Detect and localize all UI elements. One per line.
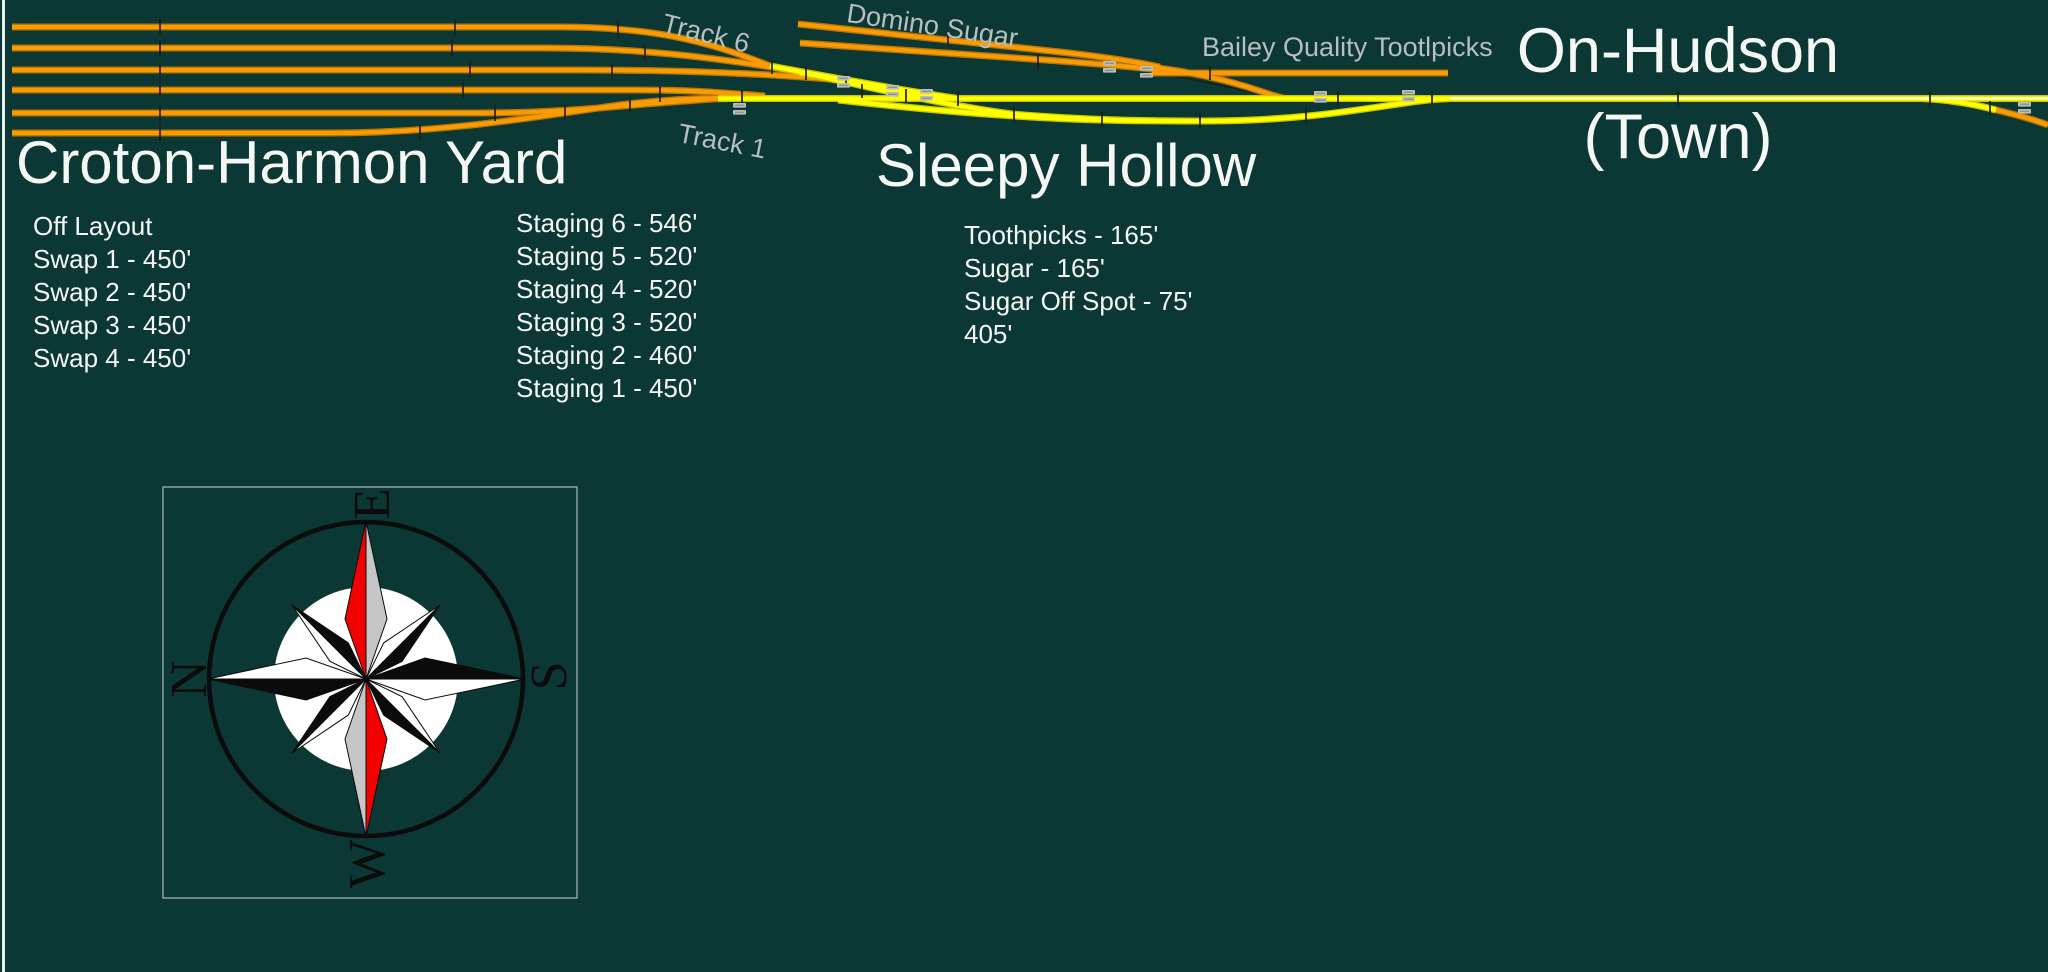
compass-letter-west: W: [339, 839, 396, 888]
list-item: Swap 2 - 450': [33, 276, 191, 309]
on-hudson-line2: (Town): [1476, 106, 1880, 169]
list-item: Staging 6 - 546': [516, 207, 697, 240]
list-item: 405': [964, 318, 1193, 351]
label-bailey-toothpicks[interactable]: Bailey Quality Tootlpicks: [1202, 34, 1493, 61]
croton-staging-track-list[interactable]: Staging 6 - 546' Staging 5 - 520' Stagin…: [516, 207, 697, 405]
list-item: Swap 4 - 450': [33, 342, 191, 375]
station-title-croton-harmon[interactable]: Croton-Harmon Yard: [16, 133, 567, 193]
page-border-line: [2, 0, 5, 972]
list-item: Swap 3 - 450': [33, 309, 191, 342]
croton-swap-track-list[interactable]: Off Layout Swap 1 - 450' Swap 2 - 450' S…: [33, 210, 191, 375]
station-title-on-hudson[interactable]: On-Hudson (Town): [1476, 20, 1880, 169]
list-item: Staging 1 - 450': [516, 372, 697, 405]
compass-rose[interactable]: E N S W: [161, 487, 578, 898]
list-item: Sugar Off Spot - 75': [964, 285, 1193, 318]
list-item: Staging 4 - 520': [516, 273, 697, 306]
track-plan-canvas: E N S W Track 6 Track 1 Domino Sugar Bai…: [0, 0, 2048, 972]
compass-letter-south: S: [521, 662, 578, 691]
station-title-sleepy-hollow[interactable]: Sleepy Hollow: [876, 136, 1256, 196]
compass-letter-east: E: [344, 488, 401, 520]
list-item: Staging 3 - 520': [516, 306, 697, 339]
compass-letter-north: N: [161, 660, 218, 698]
list-item: Sugar - 165': [964, 252, 1193, 285]
on-hudson-line1: On-Hudson: [1476, 20, 1880, 83]
list-item: Staging 5 - 520': [516, 240, 697, 273]
list-item: Off Layout: [33, 210, 191, 243]
list-item: Staging 2 - 460': [516, 339, 697, 372]
sleepy-hollow-siding-list[interactable]: Toothpicks - 165' Sugar - 165' Sugar Off…: [964, 219, 1193, 351]
list-item: Toothpicks - 165': [964, 219, 1193, 252]
list-item: Swap 1 - 450': [33, 243, 191, 276]
